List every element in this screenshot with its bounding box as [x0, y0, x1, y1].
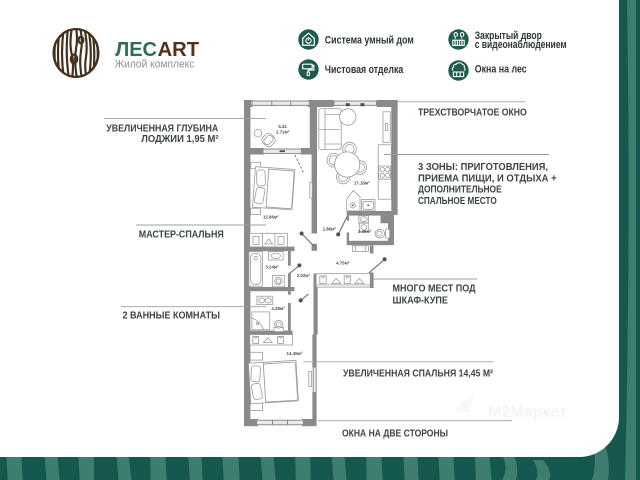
svg-text:14.45м²: 14.45м²: [287, 351, 303, 356]
svg-text:2.71м²: 2.71м²: [276, 130, 290, 135]
svg-text:УВЕЛИЧЕННАЯ ГЛУБИНА: УВЕЛИЧЕННАЯ ГЛУБИНА: [106, 123, 218, 134]
svg-text:3.24м²: 3.24м²: [265, 264, 279, 269]
svg-text:ШКАФ-КУПЕ: ШКАФ-КУПЕ: [393, 296, 449, 307]
svg-text:МНОГО МЕСТ ПОД: МНОГО МЕСТ ПОД: [393, 284, 477, 295]
svg-text:ЛОДЖИИ 1,95 М²: ЛОДЖИИ 1,95 М²: [141, 134, 219, 145]
svg-text:2.02м²: 2.02м²: [297, 273, 311, 278]
svg-text:1.86м²: 1.86м²: [323, 227, 337, 232]
svg-text:ДОПОЛНИТЕЛЬНОЕ: ДОПОЛНИТЕЛЬНОЕ: [418, 185, 502, 196]
svg-text:5.41: 5.41: [278, 124, 287, 129]
svg-text:М2Маркет: М2Маркет: [488, 404, 567, 421]
svg-text:МАСТЕР-СПАЛЬНЯ: МАСТЕР-СПАЛЬНЯ: [139, 229, 224, 240]
svg-text:ОКНА НА ДВЕ СТОРОНЫ: ОКНА НА ДВЕ СТОРОНЫ: [342, 429, 448, 440]
svg-text:2.46м²: 2.46м²: [358, 229, 372, 234]
svg-text:ТРЕХСТВОРЧАТОЕ ОКНО: ТРЕХСТВОРЧАТОЕ ОКНО: [418, 108, 527, 119]
svg-text:2 ВАННЫЕ КОМНАТЫ: 2 ВАННЫЕ КОМНАТЫ: [123, 310, 221, 321]
svg-text:ПРИЕМА ПИЩИ, И ОТДЫХА +: ПРИЕМА ПИЩИ, И ОТДЫХА +: [418, 173, 557, 184]
svg-text:4.75м²: 4.75м²: [336, 261, 350, 266]
svg-text:СПАЛЬНОЕ МЕСТО: СПАЛЬНОЕ МЕСТО: [418, 196, 497, 207]
svg-text:12.86м²: 12.86м²: [263, 214, 279, 219]
svg-text:17.18м²: 17.18м²: [354, 181, 370, 186]
svg-text:3 ЗОНЫ: ПРИГОТОВЛЕНИЯ,: 3 ЗОНЫ: ПРИГОТОВЛЕНИЯ,: [418, 162, 548, 173]
svg-text:УВЕЛИЧЕННАЯ СПАЛЬНЯ 14,45 М²: УВЕЛИЧЕННАЯ СПАЛЬНЯ 14,45 М²: [343, 368, 493, 379]
svg-text:3.28м²: 3.28м²: [271, 306, 285, 311]
